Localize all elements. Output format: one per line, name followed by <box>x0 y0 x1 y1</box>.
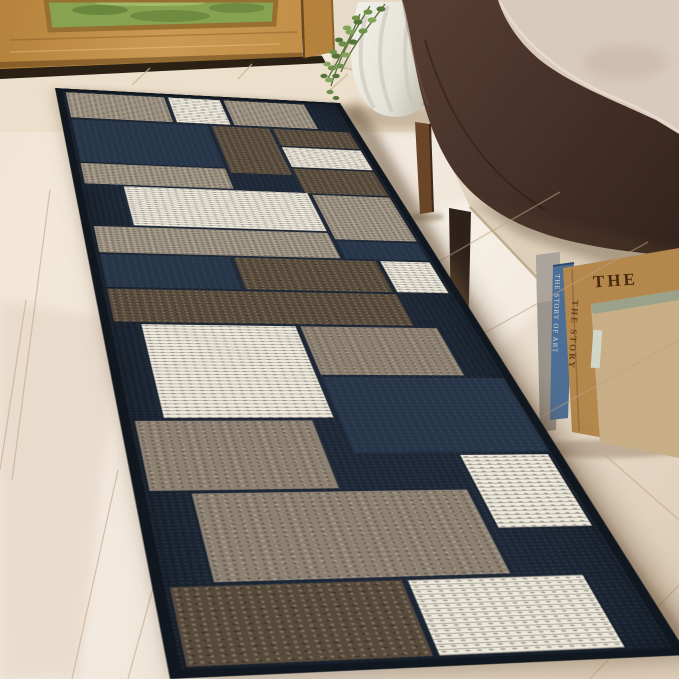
product-photo-scene: THE THE STORY OF ART THE STORY <box>0 0 679 679</box>
kraft-book <box>591 290 679 458</box>
rug-patch-navy2 <box>71 119 224 167</box>
rug-patch-brown <box>107 289 414 326</box>
rug-patch-navy2 <box>322 377 549 453</box>
rug-patch-gray <box>223 100 317 129</box>
rug-patch-gray <box>81 163 234 189</box>
rug-patch-cream <box>282 147 373 170</box>
rug-patch-cream <box>124 186 327 231</box>
pillow-fold-shade <box>583 45 667 79</box>
rug-patch-brown <box>273 129 360 149</box>
rug-patch-navy2 <box>336 241 428 261</box>
window-foliage-blur <box>72 5 128 15</box>
rug-patch-taupe <box>192 490 510 583</box>
rug-patch-cream <box>168 98 231 125</box>
window-foliage-blur <box>130 10 210 22</box>
rug-patch-navy2 <box>100 254 241 289</box>
rug-patch-taupe <box>135 420 339 491</box>
rug-patch-gray <box>66 92 173 122</box>
rug-patch-taupe <box>300 326 464 375</box>
rug-patch-gray <box>94 226 341 258</box>
tan-book-title: THE <box>592 269 638 292</box>
door-jamb <box>302 0 334 58</box>
window-foliage-blur <box>209 3 265 13</box>
rug-patch-brown <box>234 257 393 292</box>
rug-patch-cream <box>408 575 625 656</box>
rug-patch-brown <box>170 580 433 667</box>
rug-patch-brown <box>293 169 389 196</box>
